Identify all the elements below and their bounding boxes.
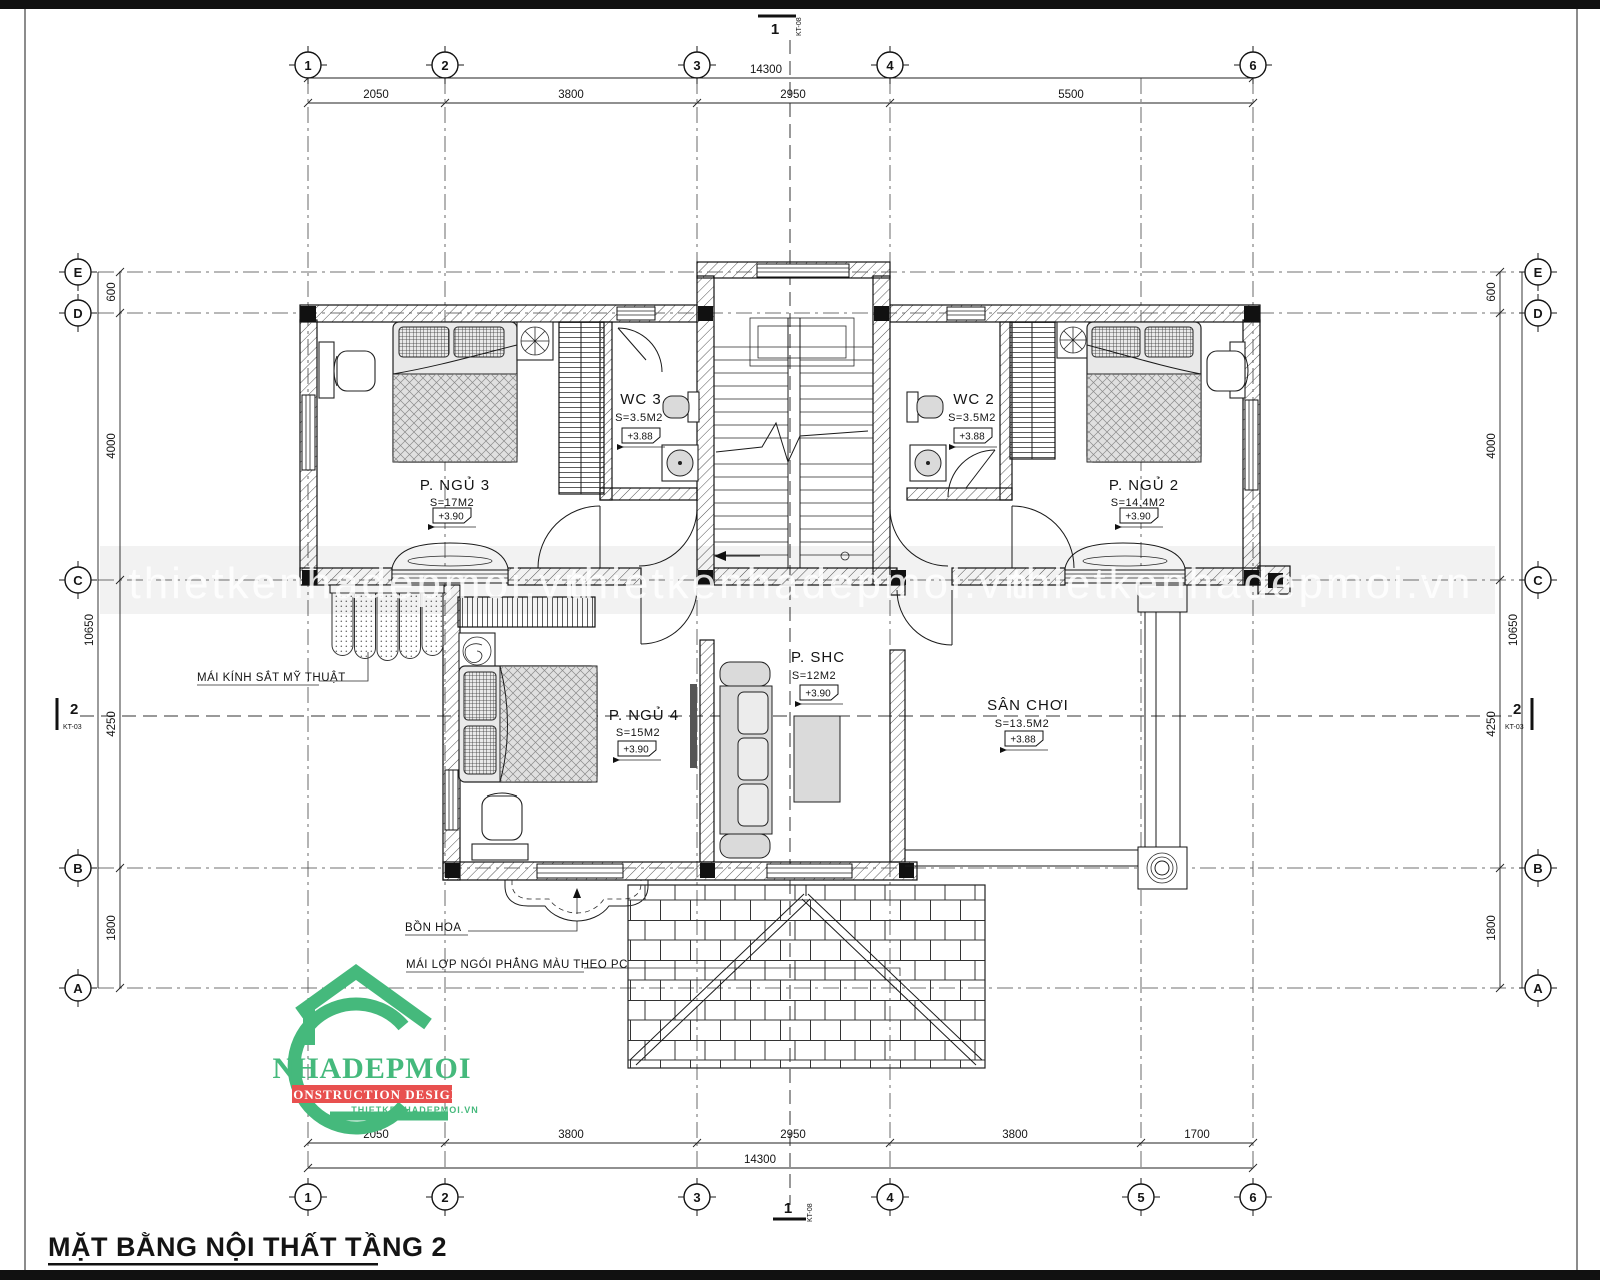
bubble-rowA-right: A [1519,969,1557,1007]
room-label-bedroom4: P. NGỦ 4 S=15M2 +3.90 [609,706,679,763]
room-area: S=17M2 [430,497,474,509]
room-name: P. NGỦ 2 [1109,476,1179,494]
svg-text:4000: 4000 [1486,433,1498,459]
section1-bottom-marker: 1 KT-08 [773,1200,814,1222]
room-level: +3.90 [623,745,649,756]
bubble-col1-bottom: 1 [289,1178,327,1216]
canopy-label: MÁI KÍNH SẮT MỸ THUẬT [197,671,346,684]
room-label-wc2: WC 2 S=3.5M2 +3.88 [948,391,997,450]
svg-text:1: 1 [304,1190,311,1205]
bedroom3-furniture [319,322,604,494]
canopy-annotation: MÁI KÍNH SẮT MỸ THUẬT [197,652,368,685]
room-name: P. NGỦ 4 [609,706,679,724]
room-name: P. SHC [791,649,845,666]
room-area: S=3.5M2 [615,412,663,424]
tiled-roof [628,885,985,1068]
room-label-terrace: SÂN CHƠI S=13.5M2 +3.88 [987,697,1069,753]
svg-text:1: 1 [771,21,779,38]
svg-text:4250: 4250 [1486,711,1498,737]
logo-website: THIETKENHADEPMOI.VN [351,1105,479,1115]
svg-text:KT-08: KT-08 [796,17,803,36]
coffee-table [794,716,840,802]
watermark-text: thietkenhadepmoi.vn [128,559,591,608]
section2-left-marker: 2 KT-03 [57,698,82,731]
svg-text:2: 2 [441,58,448,73]
svg-text:2: 2 [1513,701,1521,718]
svg-text:D: D [1533,306,1542,321]
section1-top-marker: 1 KT-08 [758,16,803,38]
lower-left-window [445,770,458,830]
svg-text:3800: 3800 [558,1129,584,1141]
flower-box [505,880,648,921]
logo-tagline: CONSTRUCTION DESIGN [283,1087,461,1102]
roof-label: MÁI LỢP NGÓI PHẲNG MÀU THEO PC [406,958,628,971]
bubble-rowD-right: D [1519,294,1557,332]
svg-text:2: 2 [441,1190,448,1205]
right-wall-window [1245,400,1258,490]
tv-panel [690,684,697,768]
svg-text:3: 3 [693,1190,700,1205]
company-logo: NHADEPMOI CONSTRUCTION DESIGN THIETKENHA… [273,972,479,1128]
staircase [714,318,873,568]
bubble-rowB-left: B [59,849,97,887]
svg-text:4: 4 [886,58,894,73]
room-level: +3.88 [627,432,653,443]
room-level: +3.88 [959,432,985,443]
dim-total-right: 10650 [1508,614,1520,646]
room-name: P. NGỦ 3 [420,476,490,494]
room-area: S=14.4M2 [1111,497,1165,509]
svg-text:6: 6 [1249,58,1256,73]
svg-text:KT-03: KT-03 [1505,724,1524,731]
svg-text:2: 2 [70,701,78,718]
drawing-title-block: MẶT BẰNG NỘI THẤT TẦNG 2 [48,1231,447,1266]
planter-label: BỒN HOA [405,921,462,934]
desk-chair [472,793,528,860]
svg-text:600: 600 [106,282,118,301]
room-label-bedroom3: P. NGỦ 3 S=17M2 +3.90 [420,476,490,530]
room-level: +3.90 [805,689,831,700]
room-level: +3.90 [1125,512,1151,523]
room-area: S=12M2 [792,670,836,682]
svg-text:1800: 1800 [106,915,118,941]
wc2-top-window [947,307,985,320]
wardrobe [1010,322,1055,459]
watermark-text: thietkenhadepmoi.vn [1010,559,1473,608]
svg-text:5500: 5500 [1058,89,1084,101]
svg-text:1700: 1700 [1184,1129,1210,1141]
svg-text:600: 600 [1486,282,1498,301]
bedroom2-furniture [1010,322,1248,462]
room-area: S=3.5M2 [948,412,996,424]
ceiling-fan-icon [1057,322,1089,358]
dim-bottom: 2050 3800 2950 3800 1700 14300 [304,1129,1257,1172]
room-name: WC 3 [620,391,662,408]
watermark-text: thietkenhadepmoi.vn [568,559,1031,608]
room-name: SÂN CHƠI [987,697,1069,714]
svg-text:B: B [73,861,82,876]
room-area: S=15M2 [616,727,660,739]
svg-text:D: D [73,306,82,321]
bubble-rowE-left: E [59,253,97,291]
watermark-band: thietkenhadepmoi.vn thietkenhadepmoi.vn … [100,546,1495,614]
wardrobe [559,322,604,494]
svg-text:A: A [1533,981,1543,996]
bubble-rowC-left: C [59,561,97,599]
bubble-rowD-left: D [59,294,97,332]
room-area: S=13.5M2 [995,718,1049,730]
dim-total-bottom: 14300 [744,1154,776,1166]
wc3-door [618,328,662,372]
svg-text:KT-08: KT-08 [807,1203,814,1222]
room-level: +3.88 [1010,735,1036,746]
ceiling-fan-icon [517,322,553,360]
svg-text:E: E [1534,265,1543,280]
desk-chair [319,342,375,398]
architectural-drawing-page: P. NGỦ 3 S=17M2 +3.90 WC 3 S=3.5M2 +3.88… [0,0,1600,1280]
svg-text:C: C [73,573,83,588]
section2-right-marker: 2 KT-03 [1505,698,1532,731]
wc2-fixtures [907,392,946,481]
svg-text:2050: 2050 [363,89,389,101]
bubble-rowA-left: A [59,969,97,1007]
floor-plan-svg: P. NGỦ 3 S=17M2 +3.90 WC 3 S=3.5M2 +3.88… [0,0,1600,1280]
bubble-col3-bottom: 3 [678,1178,716,1216]
terrace-railing [905,585,1187,889]
room-level: +3.90 [438,512,464,523]
logo-name: NHADEPMOI [273,1052,472,1085]
svg-text:E: E [74,265,83,280]
svg-text:4: 4 [886,1190,894,1205]
wc3-top-window [617,307,655,320]
svg-text:1: 1 [784,1200,792,1217]
svg-text:2950: 2950 [780,89,806,101]
svg-text:1800: 1800 [1486,915,1498,941]
left-wall-window [302,395,315,470]
room-label-wc3: WC 3 S=3.5M2 +3.88 [615,391,665,450]
lower-window-2 [767,864,852,878]
svg-text:5: 5 [1137,1190,1144,1205]
desk-chair [1207,342,1248,398]
bubble-col2-bottom: 2 [426,1178,464,1216]
svg-text:KT-03: KT-03 [63,724,82,731]
planter-annotation: BỒN HOA [405,921,577,935]
stair-tower-window [757,264,849,277]
dim-left: 600 4000 4250 1800 10650 [84,268,124,992]
sheet-frame [0,0,1600,1280]
svg-text:1: 1 [304,58,311,73]
svg-text:B: B [1533,861,1542,876]
bubble-col6-bottom: 6 [1234,1178,1272,1216]
wc3-fixtures [662,392,699,481]
drawing-title: MẶT BẰNG NỘI THẤT TẦNG 2 [48,1231,447,1262]
bedroom4-furniture [458,597,697,860]
room-label-bedroom2: P. NGỦ 2 S=14.4M2 +3.90 [1109,476,1179,530]
bubble-rowE-right: E [1519,253,1557,291]
dim-total-top: 14300 [750,64,782,76]
svg-text:2950: 2950 [780,1129,806,1141]
bubble-col5-bottom: 5 [1122,1178,1160,1216]
bubble-rowC-right: C [1519,561,1557,599]
spiral-fan-icon [459,633,495,669]
svg-text:3800: 3800 [1002,1129,1028,1141]
bubble-rowB-right: B [1519,849,1557,887]
svg-text:6: 6 [1249,1190,1256,1205]
svg-text:4250: 4250 [106,711,118,737]
svg-text:3: 3 [693,58,700,73]
svg-text:3800: 3800 [558,89,584,101]
room-label-shc: P. SHC S=12M2 +3.90 [791,649,845,707]
room-name: WC 2 [953,391,995,408]
svg-text:A: A [73,981,83,996]
svg-text:C: C [1533,573,1543,588]
dim-right: 600 4000 4250 1800 10650 [1486,268,1522,992]
lower-window-1 [537,864,623,878]
dim-total-left: 10650 [84,614,96,646]
bubble-col4-bottom: 4 [871,1178,909,1216]
svg-text:4000: 4000 [106,433,118,459]
